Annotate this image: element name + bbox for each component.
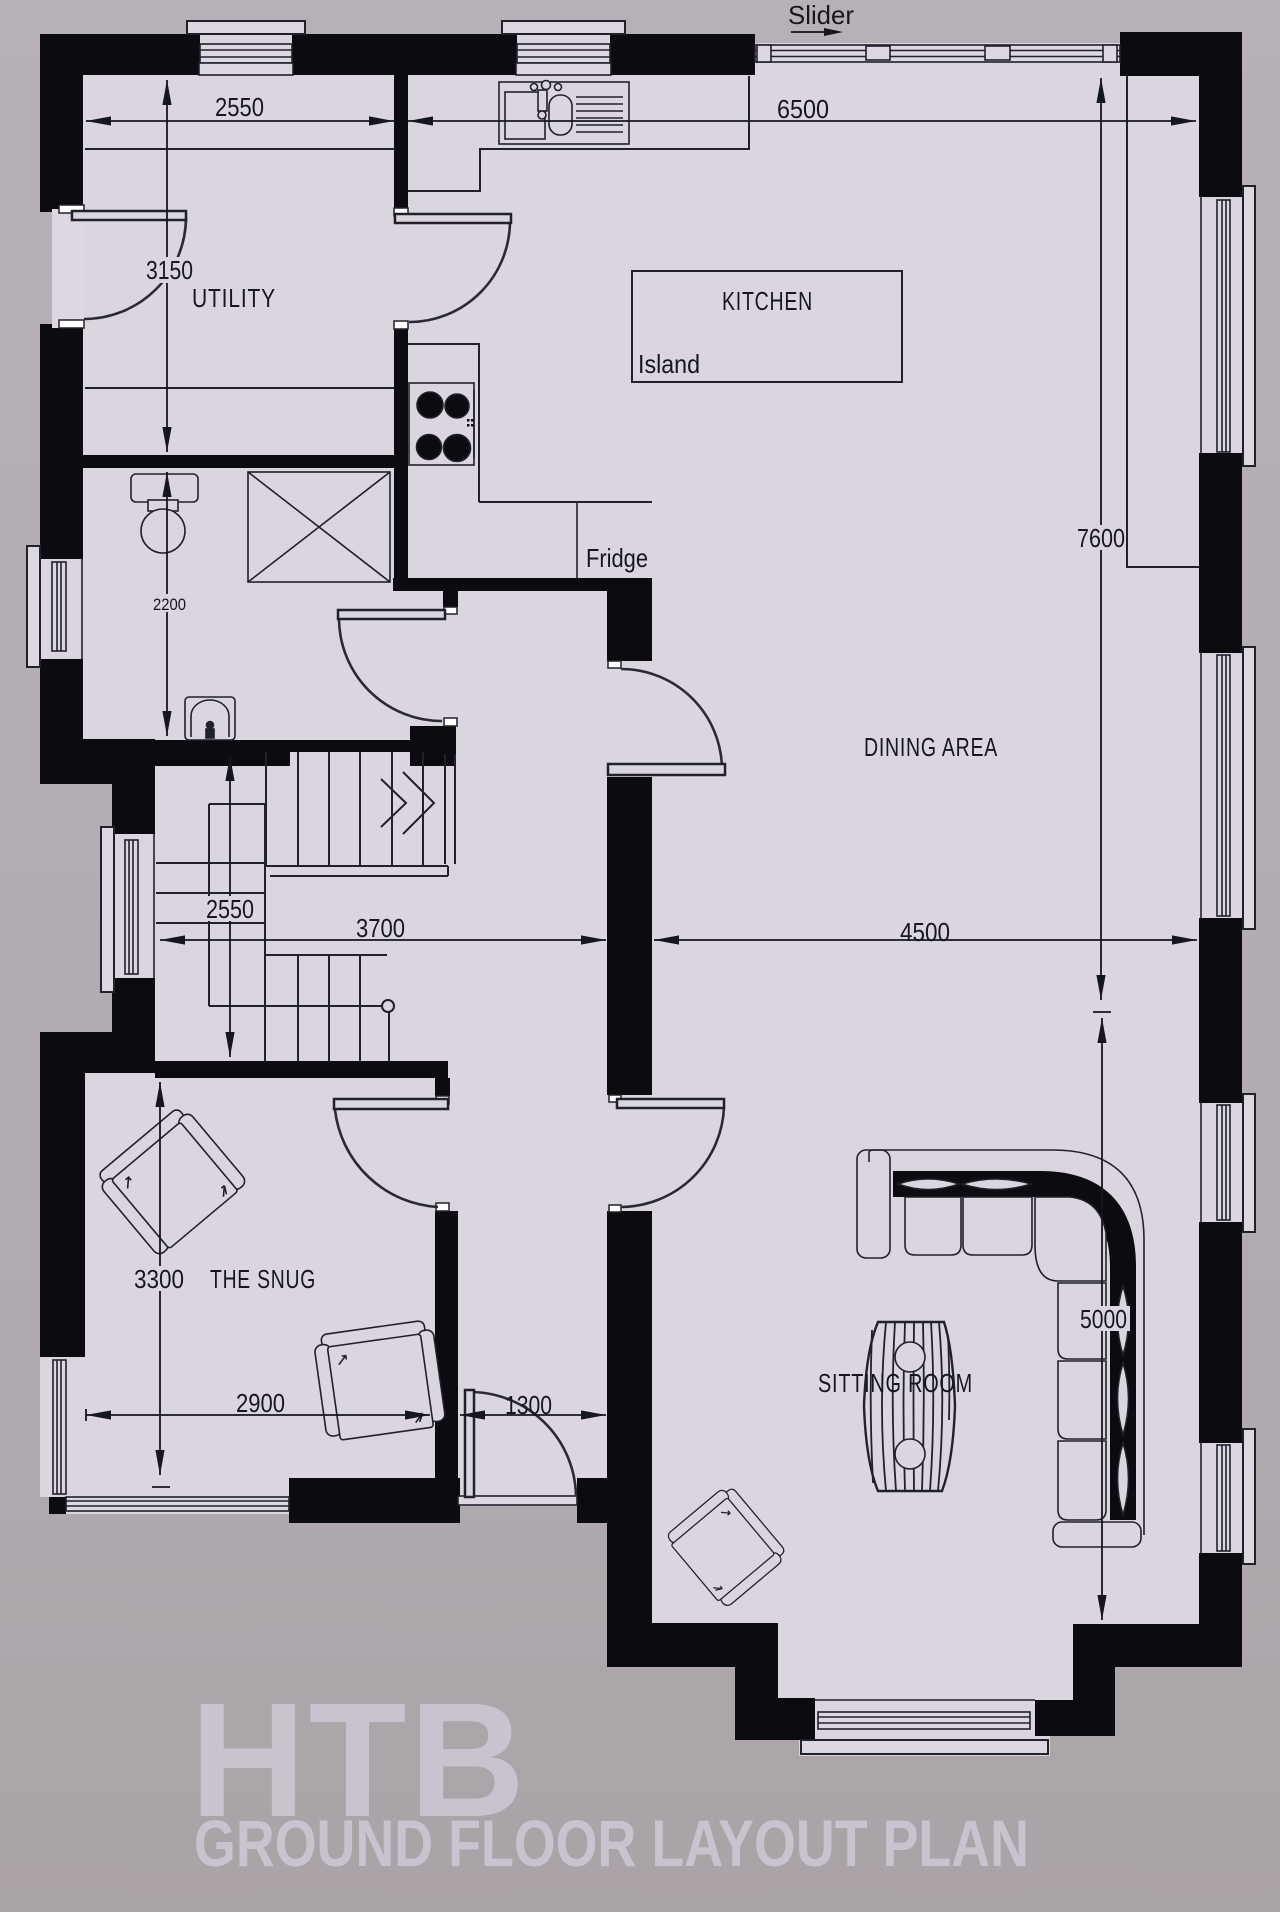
- svg-text:2550: 2550: [206, 894, 254, 924]
- svg-text:DINING AREA: DINING AREA: [864, 732, 998, 762]
- svg-text:7600: 7600: [1077, 523, 1125, 553]
- svg-text:4500: 4500: [900, 917, 950, 947]
- svg-text:Slider: Slider: [788, 0, 854, 30]
- svg-text:3700: 3700: [356, 913, 405, 943]
- svg-text:2200: 2200: [153, 595, 186, 614]
- svg-text:5000: 5000: [1080, 1304, 1127, 1334]
- svg-text:2900: 2900: [236, 1388, 285, 1418]
- svg-text:1300: 1300: [505, 1390, 552, 1420]
- svg-text:2550: 2550: [215, 92, 264, 122]
- svg-text:3300: 3300: [134, 1264, 184, 1294]
- svg-text:3150: 3150: [146, 255, 193, 285]
- svg-text:Fridge: Fridge: [586, 543, 648, 573]
- svg-text:KITCHEN: KITCHEN: [722, 286, 813, 316]
- svg-text:UTILITY: UTILITY: [192, 283, 276, 313]
- svg-text:GROUND FLOOR LAYOUT PLAN: GROUND FLOOR LAYOUT PLAN: [194, 1806, 1029, 1880]
- svg-text:6500: 6500: [777, 94, 829, 124]
- svg-text:THE SNUG: THE SNUG: [210, 1264, 316, 1294]
- svg-text:SITTING ROOM: SITTING ROOM: [818, 1368, 973, 1398]
- svg-text:Island: Island: [638, 349, 700, 379]
